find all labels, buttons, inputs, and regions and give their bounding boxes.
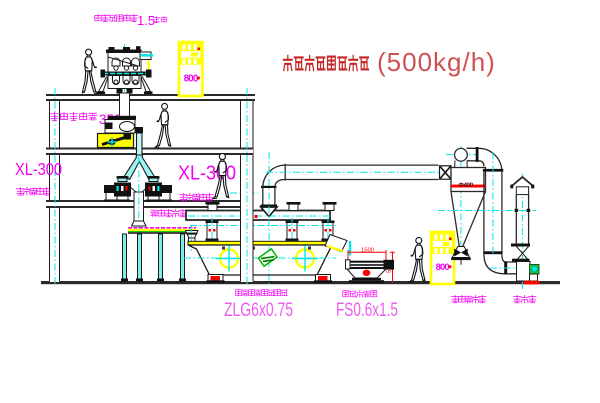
svg-text:ZLG6x0.75: ZLG6x0.75 bbox=[224, 299, 293, 321]
svg-text:(500kg/h): (500kg/h) bbox=[377, 47, 496, 77]
svg-text:800: 800 bbox=[436, 261, 450, 272]
svg-text:Φ400: Φ400 bbox=[459, 182, 474, 189]
svg-text:XL-300: XL-300 bbox=[15, 159, 62, 179]
svg-text:XL-300: XL-300 bbox=[178, 163, 236, 185]
svg-text:1500: 1500 bbox=[361, 248, 374, 254]
svg-text:FS0.6x1.5: FS0.6x1.5 bbox=[336, 299, 398, 321]
svg-text:800: 800 bbox=[184, 73, 198, 84]
svg-text:1.5: 1.5 bbox=[137, 13, 155, 28]
